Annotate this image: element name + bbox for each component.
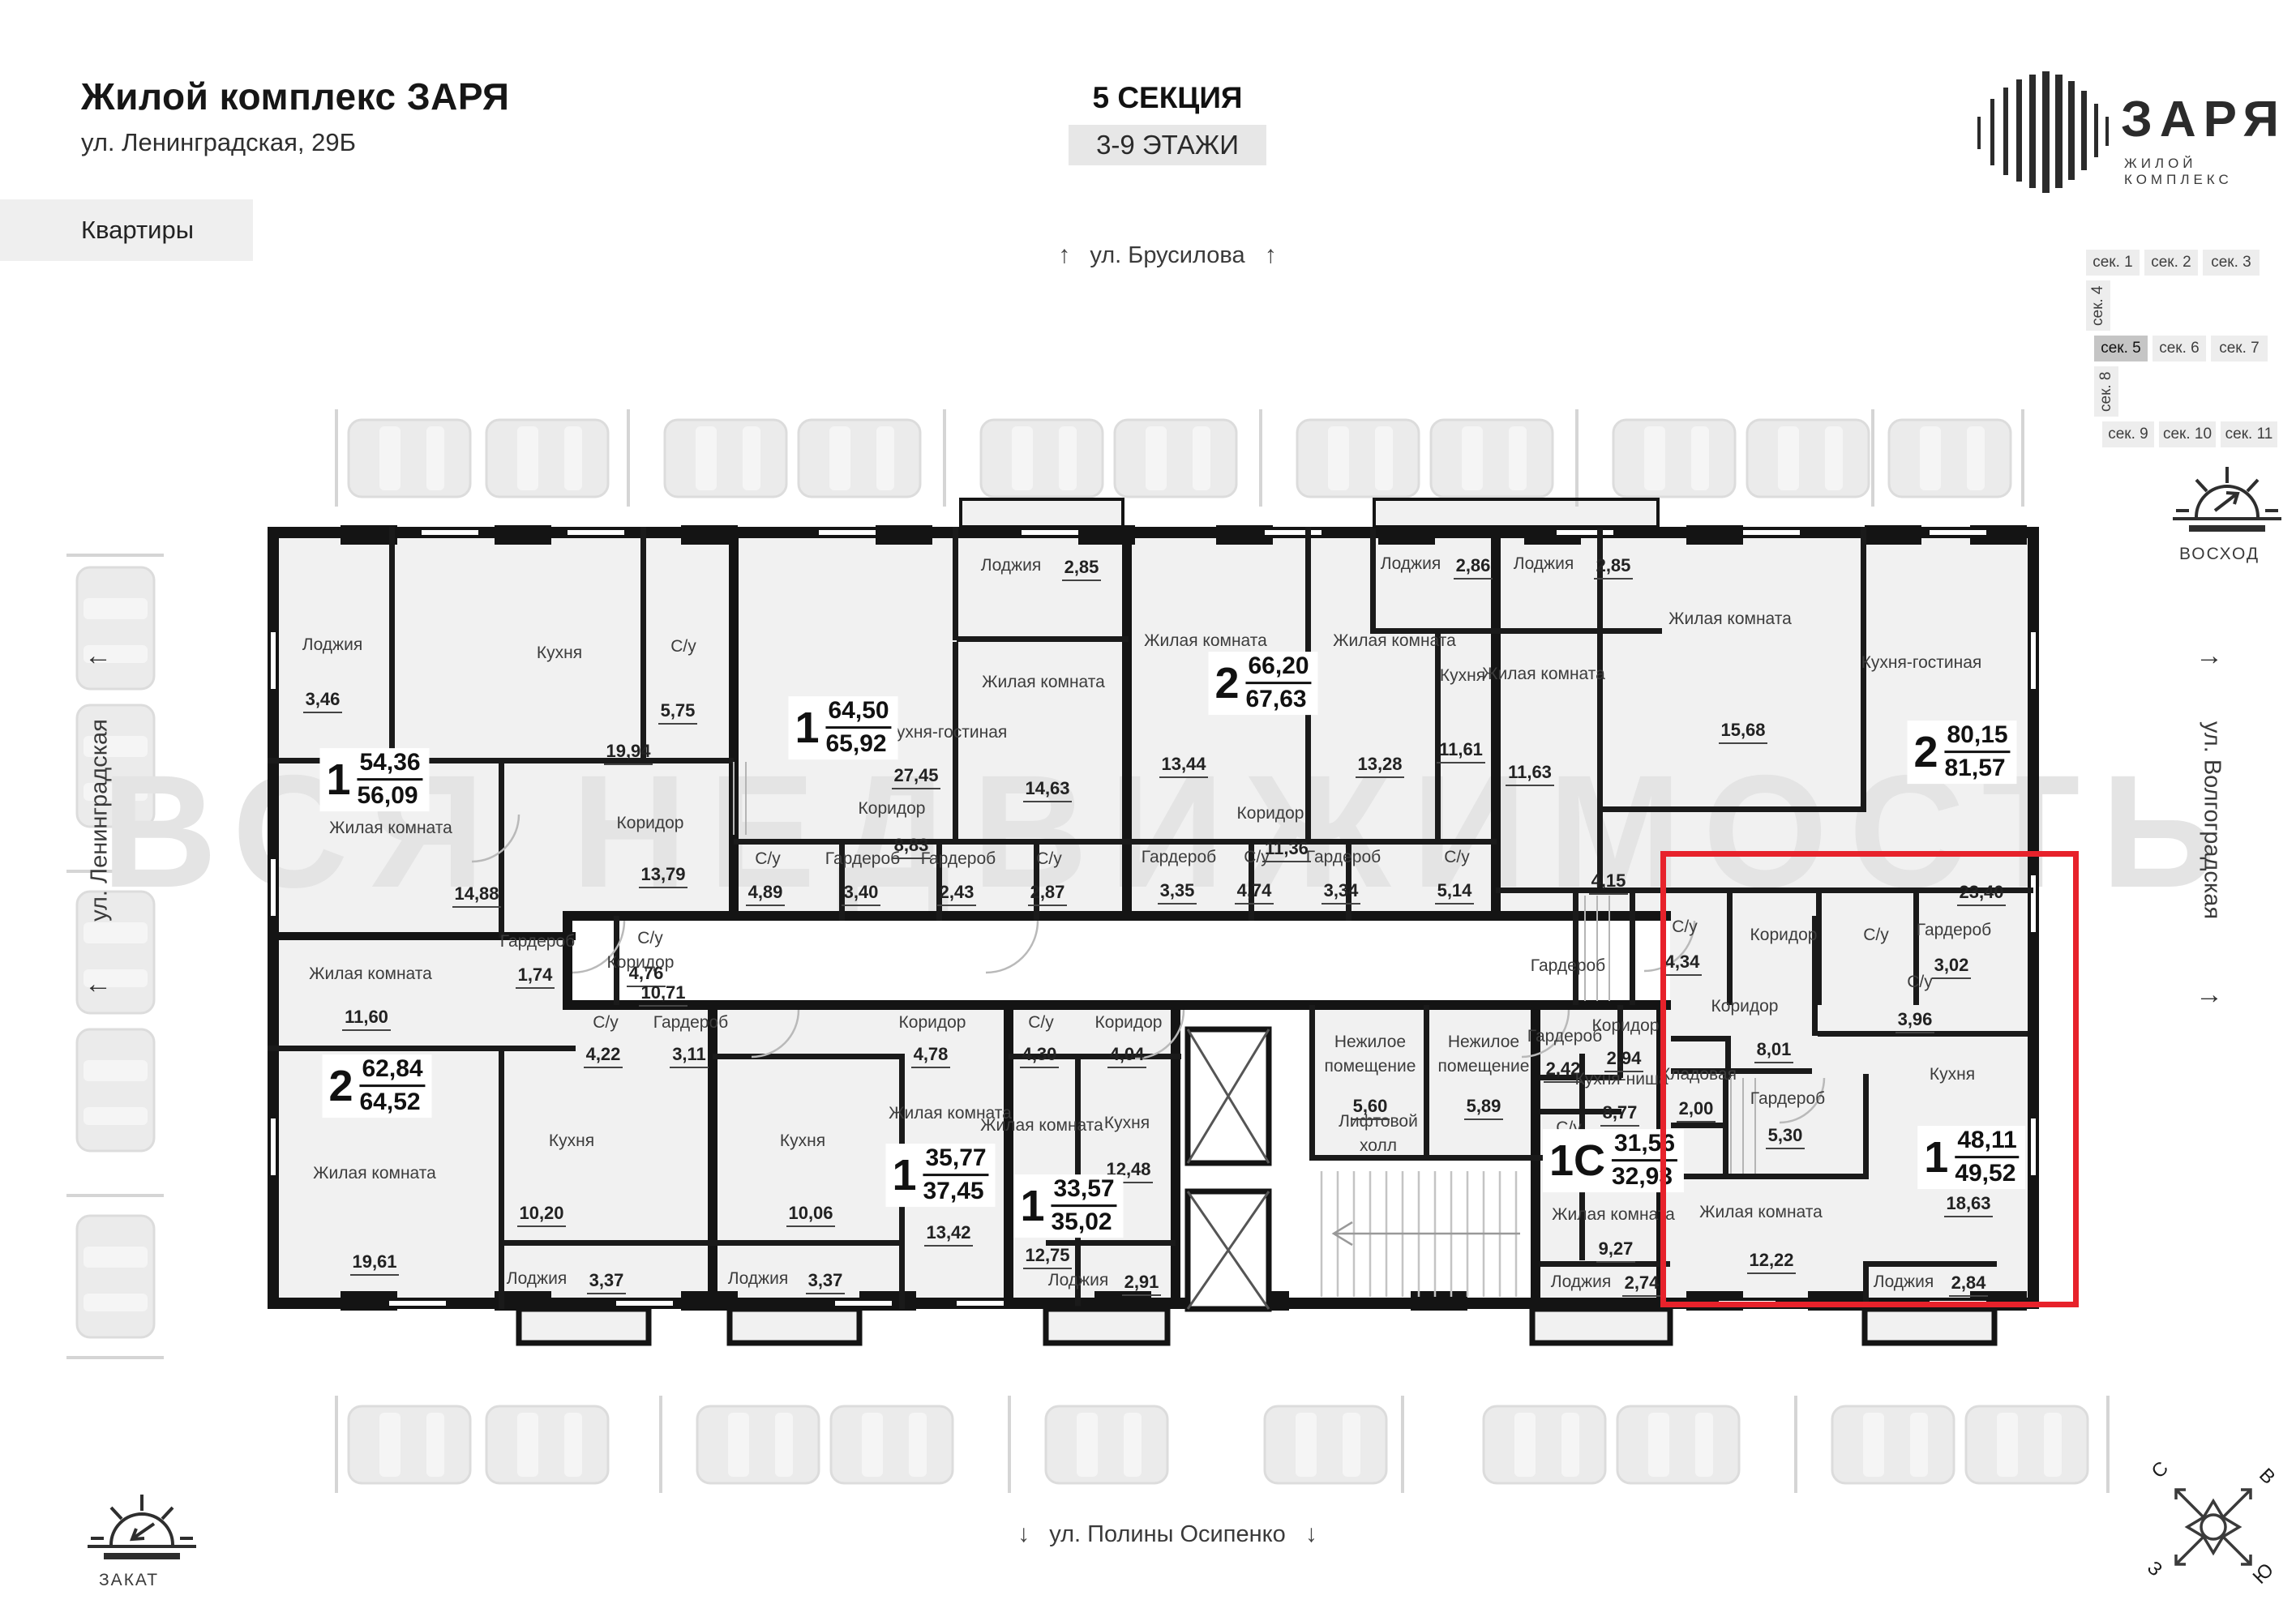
apartment-label-E[interactable]: 262,8464,52 [322, 1054, 431, 1118]
section-nav: сек. 1 сек. 2 сек. 3 сек. 4 сек. 5 сек. … [2086, 250, 2289, 428]
sunset-icon [81, 1482, 203, 1567]
logo-subtitle: ЖИЛОЙ КОМПЛЕКС [2124, 156, 2296, 188]
arrow-up-icon: ↑ [1265, 242, 1277, 268]
apartment-areas: 80,1581,57 [1944, 722, 2010, 782]
logo-name: ЗАРЯ [2121, 91, 2286, 148]
selected-apartment-highlight[interactable] [1660, 851, 2079, 1307]
apartment-area-living: 66,20 [1245, 653, 1311, 684]
nav-sec-4[interactable]: сек. 4 [2086, 280, 2110, 331]
page-address: ул. Ленинградская, 29Б [81, 128, 356, 157]
street-right: ул. Волгоградская [2199, 721, 2225, 919]
apartment-label-C[interactable]: 266,2067,63 [1208, 652, 1317, 715]
nav-sec-3[interactable]: сек. 3 [2203, 250, 2260, 276]
arrow-down-icon: ↓ [1017, 1520, 1030, 1547]
section-title: 5 СЕКЦИЯ [1013, 81, 1321, 115]
arrow-left-icon: ← [84, 969, 112, 1000]
logo-icon [1976, 71, 2114, 195]
floors-badge: 3-9 ЭТАЖИ [1069, 125, 1266, 165]
street-bottom: ↓ ул. Полины Осипенко ↓ [957, 1520, 1378, 1548]
nav-sec-10[interactable]: сек. 10 [2159, 421, 2216, 447]
page-title: Жилой комплекс ЗАРЯ [81, 75, 509, 118]
apartment-type: 2 [1913, 730, 1938, 774]
apartment-area-living: 80,15 [1944, 722, 2010, 753]
nav-sec-8[interactable]: сек. 8 [2094, 366, 2118, 417]
apartment-type: 1 [326, 758, 350, 802]
nav-sec-7[interactable]: сек. 7 [2211, 336, 2268, 361]
apartment-label-B[interactable]: 164,5065,92 [788, 696, 897, 759]
apartment-areas: 64,5065,92 [825, 698, 891, 758]
apartment-areas: 35,7737,45 [923, 1145, 988, 1205]
apartment-area-total: 56,09 [357, 781, 422, 810]
floor-plan-page: ВСЯ НЕДВИЖИМОСТЬ [0, 0, 2296, 1621]
apartment-area-total: 35,02 [1051, 1208, 1116, 1236]
apartment-type: 1 [795, 706, 819, 750]
tab-apartments-label: Квартиры [81, 216, 194, 245]
apartment-area-total: 67,63 [1245, 685, 1311, 713]
apartment-type: 2 [1214, 661, 1239, 705]
nav-sec-1[interactable]: сек. 1 [2086, 250, 2140, 276]
sunrise-label: ВОСХОД [2179, 545, 2260, 564]
apartment-type: 2 [328, 1064, 353, 1108]
apartment-area-total: 81,57 [1944, 754, 2010, 782]
street-left: ул. Ленинградская [87, 719, 114, 922]
arrow-down-icon: ↓ [1305, 1520, 1317, 1547]
apartment-area-total: 65,92 [825, 729, 891, 758]
apartment-area-living: 62,84 [359, 1056, 425, 1087]
apartment-label-A[interactable]: 154,3656,09 [319, 748, 429, 811]
nav-sec-9[interactable]: сек. 9 [2102, 421, 2154, 447]
apartment-type: 1С [1549, 1139, 1605, 1183]
apartment-area-living: 35,77 [923, 1145, 988, 1176]
sunset-label: ЗАКАТ [99, 1571, 159, 1590]
arrow-right-icon: → [2195, 979, 2223, 1011]
apartment-type: 1 [892, 1153, 916, 1197]
nav-sec-5[interactable]: сек. 5 [2094, 336, 2148, 361]
apartment-area-total: 37,45 [923, 1177, 988, 1205]
arrow-left-icon: ← [84, 640, 112, 672]
arrow-up-icon: ↑ [1058, 242, 1070, 268]
apartment-areas: 62,8464,52 [359, 1056, 425, 1116]
nav-sec-2[interactable]: сек. 2 [2144, 250, 2198, 276]
apartment-label-D[interactable]: 280,1581,57 [1907, 721, 2016, 784]
apartment-label-G[interactable]: 133,5735,02 [1013, 1174, 1123, 1238]
street-top: ↑ ул. Брусилова ↑ [1005, 242, 1330, 269]
apartment-areas: 33,5735,02 [1051, 1176, 1116, 1236]
arrow-right-icon: → [2195, 640, 2223, 672]
apartment-area-living: 33,57 [1051, 1176, 1116, 1207]
tab-apartments[interactable]: Квартиры [0, 199, 253, 261]
apartment-type: 1 [1020, 1184, 1044, 1228]
apartment-area-total: 64,52 [359, 1088, 425, 1116]
apartment-area-living: 54,36 [357, 750, 422, 781]
sunrise-icon [2166, 454, 2288, 539]
apartment-label-F[interactable]: 135,7737,45 [885, 1144, 995, 1207]
apartment-area-living: 64,50 [825, 698, 891, 729]
nav-sec-11[interactable]: сек. 11 [2221, 421, 2277, 447]
apartment-areas: 54,3656,09 [357, 750, 422, 810]
nav-sec-6[interactable]: сек. 6 [2152, 336, 2206, 361]
apartment-areas: 66,2067,63 [1245, 653, 1311, 713]
